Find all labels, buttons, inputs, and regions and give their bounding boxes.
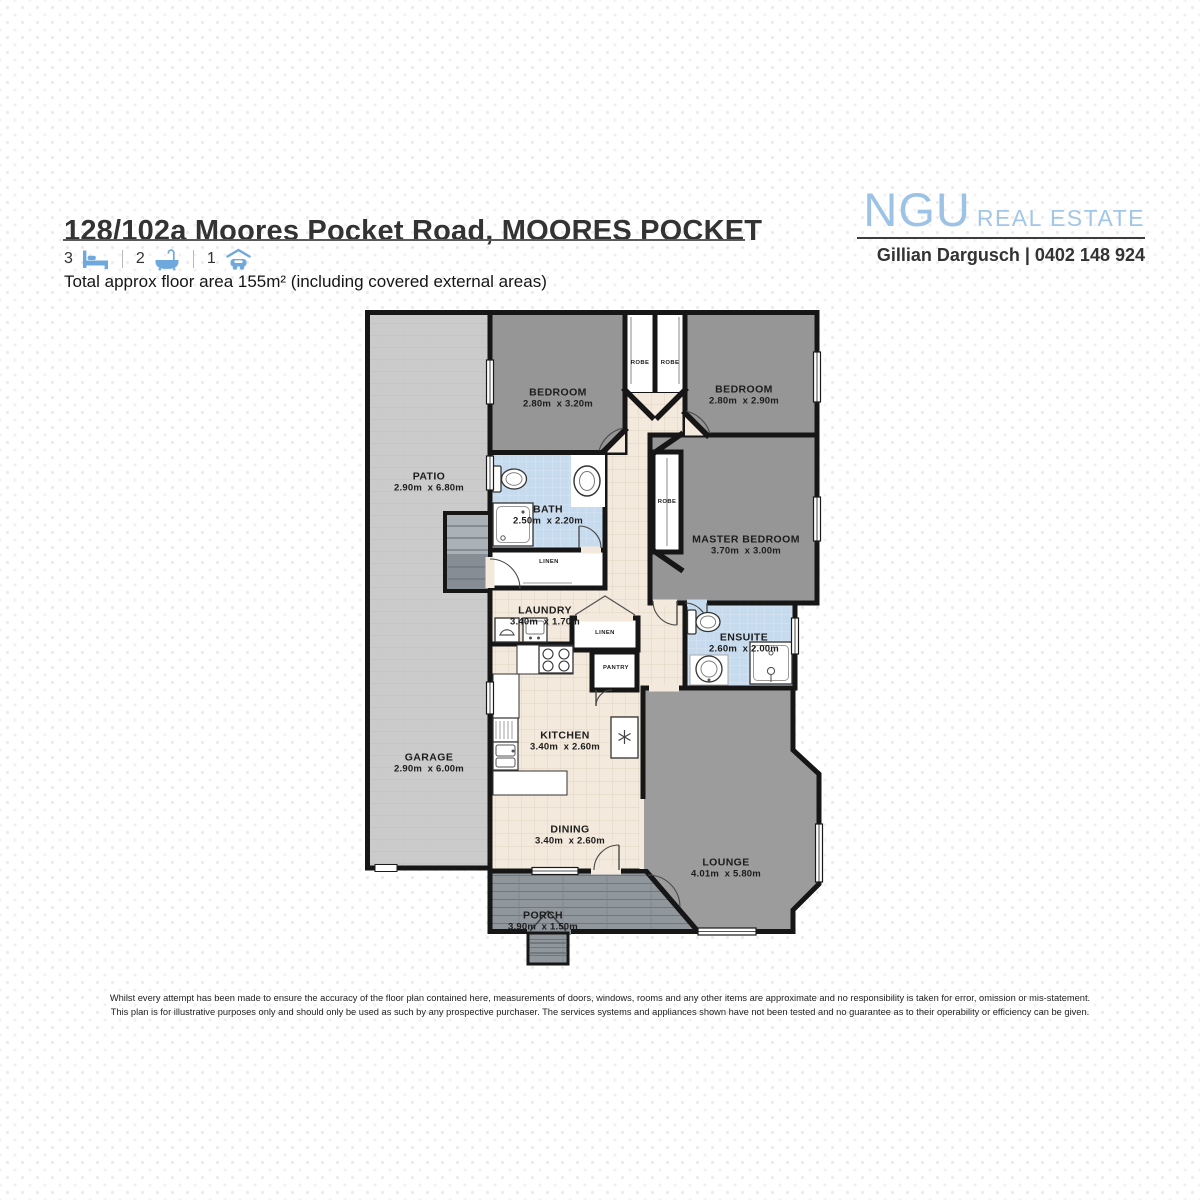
window <box>792 618 799 654</box>
window <box>698 928 756 935</box>
label-robe-master: ROBE <box>658 499 677 505</box>
window <box>816 824 823 882</box>
floor-area-note: Total approx floor area 155m² (including… <box>64 272 547 292</box>
label-linen-hall: LINEN <box>539 559 559 565</box>
window <box>487 682 494 714</box>
room-label-master: MASTER BEDROOM3.70m x 3.00m <box>692 495 800 556</box>
agent-contact: Gillian Dargusch | 0402 148 924 <box>877 245 1145 266</box>
page-title: 128/102a Moores Pocket Road, MOORES POCK… <box>64 215 762 248</box>
window <box>814 352 821 402</box>
label-pantry: PANTRY <box>603 665 629 671</box>
brand-logo: NGU REAL ESTATE <box>863 186 1145 233</box>
room-label-patio: PATIO2.90m x 6.80m <box>394 432 464 493</box>
room-label-dining: DINING3.40m x 2.60m <box>535 785 605 846</box>
brand-logo-primary: NGU <box>863 186 970 233</box>
vanity-icon <box>690 655 728 685</box>
room-label-garage: GARAGE2.90m x 6.00m <box>394 713 464 774</box>
bath-icon <box>154 248 180 271</box>
bath-count: 2 <box>136 250 145 268</box>
feature-divider <box>193 250 194 268</box>
title-divider <box>63 239 745 241</box>
garage-opening <box>375 865 397 872</box>
window <box>814 497 821 541</box>
room-label-porch: PORCH3.90m x 1.50m <box>508 871 578 932</box>
label-robe-left: ROBE <box>631 360 650 366</box>
car-icon <box>225 248 252 271</box>
window <box>487 360 494 404</box>
room-label-bedroom1: BEDROOM2.80m x 3.20m <box>523 348 593 409</box>
bed-count: 3 <box>64 250 73 268</box>
disclaimer-line2: This plan is for illustrative purposes o… <box>0 1006 1200 1020</box>
feature-divider <box>122 250 123 268</box>
pantry-closet <box>592 652 637 690</box>
bed-icon <box>82 248 109 271</box>
room-label-laundry: LAUNDRY3.40m x 1.70m <box>510 566 580 627</box>
patio-steps <box>445 513 495 591</box>
label-linen-laundry: LINEN <box>595 630 615 636</box>
label-robe-right: ROBE <box>661 360 680 366</box>
room-label-bath: BATH2.50m x 2.20m <box>513 465 583 526</box>
room-label-ensuite: ENSUITE2.60m x 2.00m <box>709 593 779 654</box>
window <box>487 456 494 490</box>
feature-summary: 3 2 1 <box>64 246 252 272</box>
stove-icon <box>539 646 573 673</box>
sink-icon <box>493 718 518 770</box>
floorplan: PATIO2.90m x 6.80m GARAGE2.90m x 6.00m B… <box>365 300 831 975</box>
room-label-lounge: LOUNGE4.01m x 5.80m <box>691 818 761 879</box>
room-label-kitchen: KITCHEN3.40m x 2.60m <box>530 691 600 752</box>
brand-divider <box>857 237 1145 239</box>
fridge-icon <box>611 717 638 758</box>
room-label-bedroom2: BEDROOM2.80m x 2.90m <box>709 345 779 406</box>
disclaimer: Whilst every attempt has been made to en… <box>0 992 1200 1019</box>
brand-logo-secondary: REAL ESTATE <box>977 205 1145 232</box>
disclaimer-line1: Whilst every attempt has been made to en… <box>0 992 1200 1006</box>
car-count: 1 <box>207 250 216 268</box>
